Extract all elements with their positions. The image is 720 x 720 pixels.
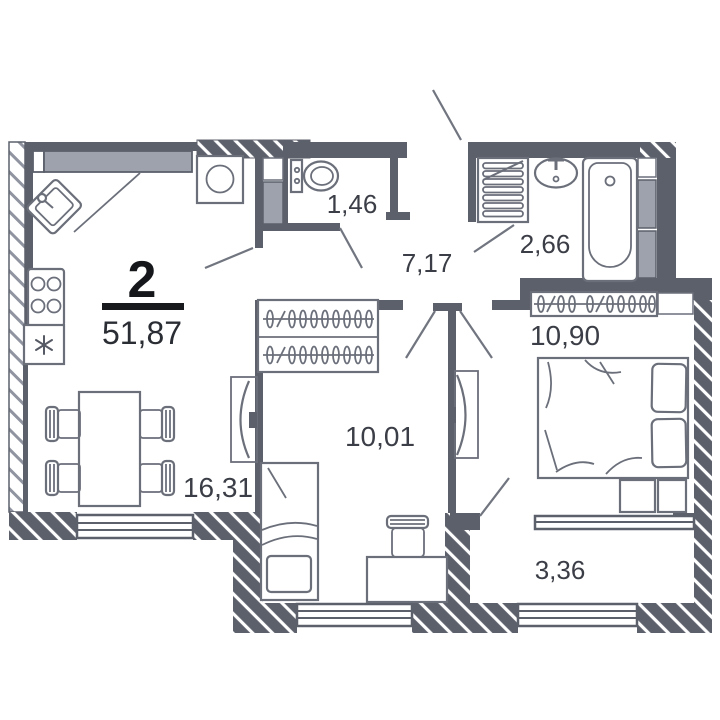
room-area-label: 1,46: [327, 189, 378, 219]
wall-hatched: [412, 603, 445, 633]
bathroom-door-swing: [474, 225, 514, 252]
kitchen-sink-icon: [26, 178, 83, 235]
room-area-label: 7,17: [402, 248, 453, 278]
wall: [468, 158, 476, 222]
wall-exterior-hatched: [9, 142, 25, 512]
wall-hatched: [263, 603, 297, 633]
wardrobe-icon: [258, 300, 378, 372]
room-area-label: 10,01: [345, 421, 415, 452]
wall: [450, 513, 480, 530]
niche: [638, 158, 656, 177]
chair-icon: [140, 461, 174, 495]
apartment-type-label: 2: [128, 251, 157, 309]
toilet-icon: [291, 160, 338, 192]
room-area-label: 10,90: [530, 320, 600, 351]
ventilation-shaft: [263, 182, 283, 224]
dining-table-icon: [79, 392, 140, 506]
counter-edge: [74, 173, 140, 232]
room-window: [297, 604, 412, 626]
ventilation-shaft: [638, 231, 656, 278]
wall: [26, 142, 197, 151]
bathroom: [478, 158, 637, 281]
double-bed-icon: [538, 358, 688, 478]
entrance-door-swing: [433, 90, 461, 140]
room-area-label: 3,36: [535, 555, 586, 585]
bathroom-sink-icon: [535, 158, 577, 188]
fridge-icon: [24, 325, 64, 364]
wall: [255, 152, 263, 248]
wall: [390, 158, 398, 212]
single-bed-icon: [261, 463, 318, 600]
wall-exterior-hatched: [694, 300, 712, 633]
desk-chair-icon: [387, 516, 428, 557]
type-underline: [102, 303, 184, 310]
room-door-swing: [406, 311, 435, 358]
kitchen-door-swing: [205, 248, 253, 268]
room-area-label: 16,31: [183, 472, 253, 503]
living-room-window: [77, 515, 193, 538]
ventilation-shaft: [638, 180, 656, 228]
wall: [386, 212, 410, 220]
towel-dryer-icon: [478, 158, 528, 222]
kitchen-counter-icon: [44, 151, 192, 172]
wall-hatched: [445, 603, 518, 633]
wardrobe-icon: [531, 292, 657, 316]
desk-icon: [367, 557, 447, 602]
balcony-door-swing: [480, 478, 509, 516]
wall-hatched: [193, 512, 233, 540]
wall: [492, 300, 532, 310]
wall: [23, 352, 28, 512]
balcony-window: [518, 604, 637, 626]
floor-plan: 2 51,87 16,31 7,17 1,46 2,66 10,90 10,01…: [0, 0, 720, 720]
chair-icon: [140, 407, 174, 441]
chair-icon: [46, 407, 80, 441]
wall: [657, 158, 676, 283]
wc-door-swing: [340, 228, 362, 268]
wall-hatched: [233, 512, 263, 633]
wc: [291, 160, 338, 192]
wall-hatched: [640, 142, 676, 158]
stove-icon: [28, 269, 64, 326]
wall: [468, 142, 640, 158]
tv-icon: [231, 377, 257, 462]
wall: [433, 303, 462, 311]
niche: [658, 293, 693, 314]
nightstand-icon: [658, 480, 686, 512]
bedroom-balcony-window: [535, 516, 694, 529]
wall-hatched: [9, 512, 77, 540]
total-area-label: 51,87: [102, 315, 182, 351]
chair-icon: [46, 461, 80, 495]
floor-plan-svg: 2 51,87 16,31 7,17 1,46 2,66 10,90 10,01…: [0, 0, 720, 720]
faucet-icon: [38, 194, 46, 202]
wall: [283, 142, 407, 158]
washing-machine-icon: [197, 156, 243, 203]
nightstand-icon: [620, 480, 655, 512]
tv-mount: [448, 407, 456, 423]
room-area-label: 2,66: [520, 229, 571, 259]
niche: [263, 158, 283, 180]
counter-end: [33, 151, 44, 172]
bathtub-icon: [583, 158, 637, 281]
tv-mount: [249, 412, 257, 428]
bedroom-door-swing: [460, 311, 492, 358]
